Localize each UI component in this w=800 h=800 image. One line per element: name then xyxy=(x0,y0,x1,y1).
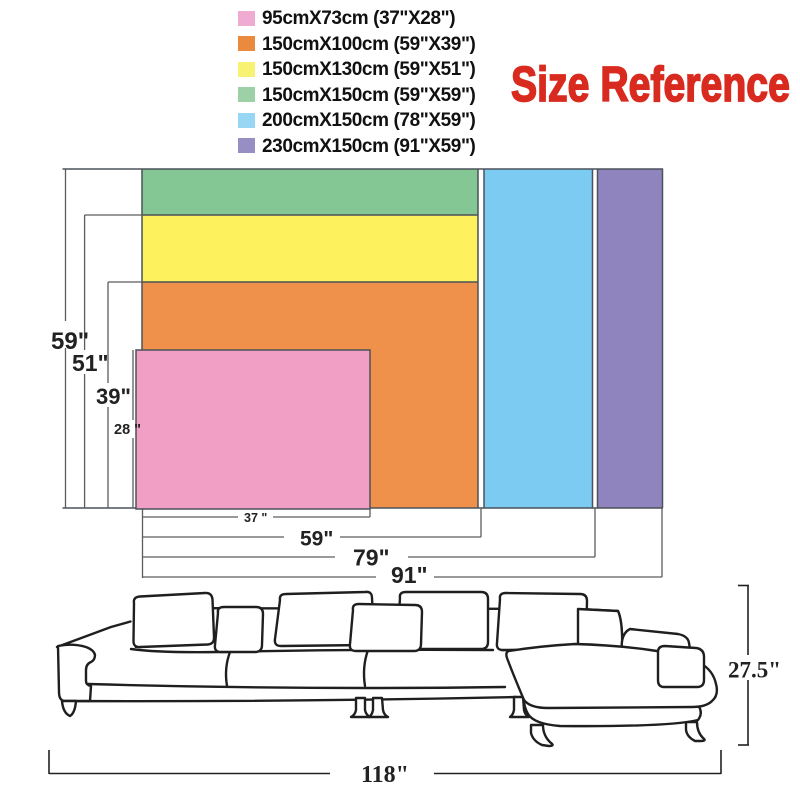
svg-text:28 ": 28 " xyxy=(114,422,141,438)
svg-text:91": 91" xyxy=(391,562,428,588)
svg-text:37 ": 37 " xyxy=(244,511,267,525)
svg-text:79": 79" xyxy=(353,545,390,571)
svg-text:59": 59" xyxy=(300,528,333,551)
svg-text:27.5": 27.5" xyxy=(728,658,781,683)
svg-text:39": 39" xyxy=(96,384,131,409)
svg-text:51": 51" xyxy=(72,350,109,376)
svg-text:118": 118" xyxy=(361,762,409,788)
